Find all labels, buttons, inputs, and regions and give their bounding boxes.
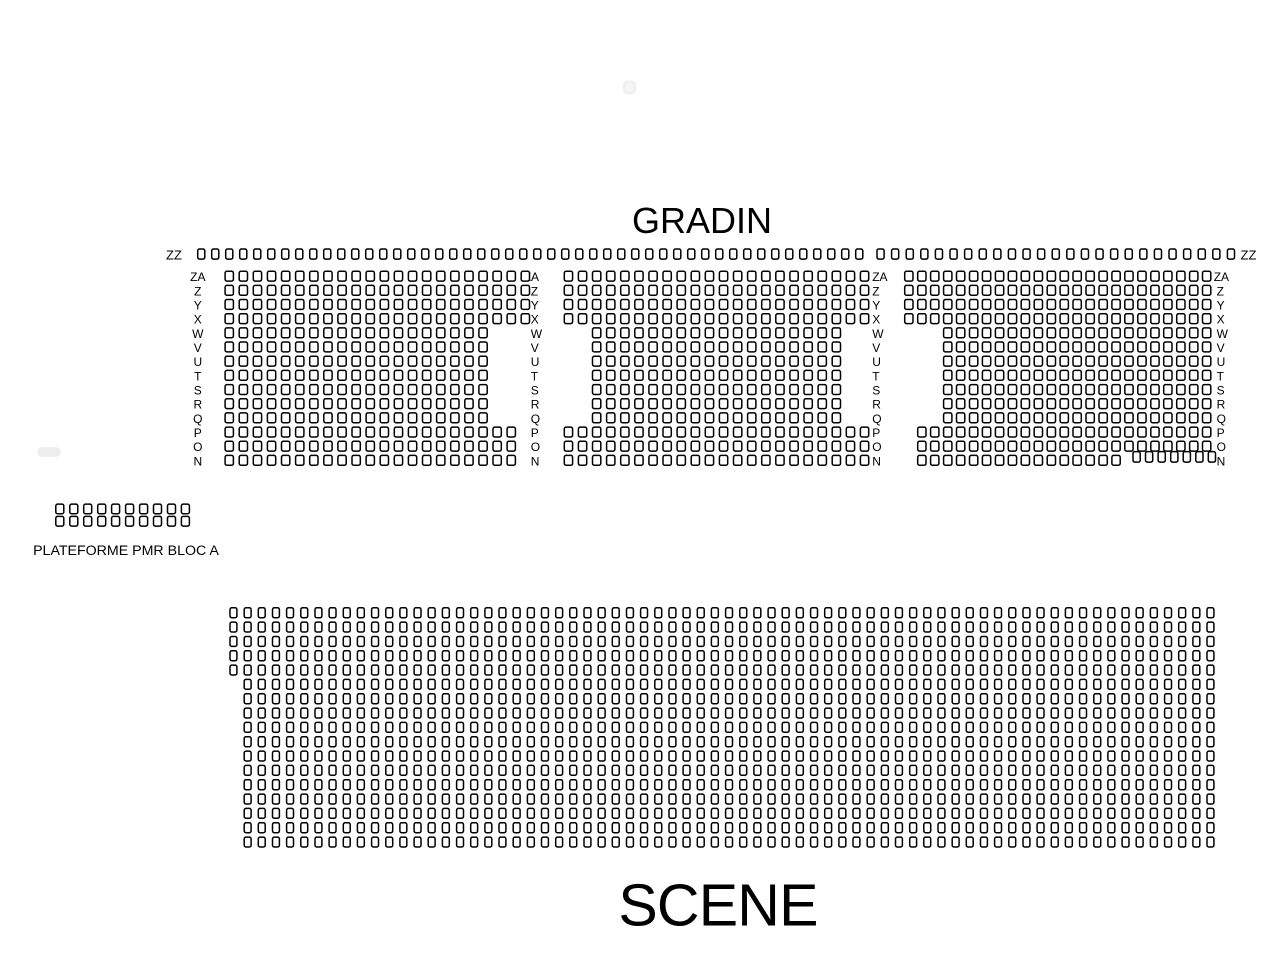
svg-text:Z: Z xyxy=(1217,284,1224,298)
svg-text:W: W xyxy=(1217,327,1229,341)
svg-text:P: P xyxy=(872,426,880,440)
svg-text:N: N xyxy=(872,454,881,468)
svg-text:W: W xyxy=(872,327,884,341)
svg-text:Z: Z xyxy=(872,284,879,298)
svg-text:R: R xyxy=(193,398,202,412)
svg-text:X: X xyxy=(194,313,202,327)
svg-text:P: P xyxy=(531,426,539,440)
svg-text:O: O xyxy=(193,440,202,454)
svg-text:ZZ: ZZ xyxy=(166,248,182,263)
svg-text:Y: Y xyxy=(1217,299,1225,313)
svg-text:T: T xyxy=(194,369,202,383)
svg-text:Q: Q xyxy=(872,412,881,426)
svg-text:R: R xyxy=(872,398,881,412)
svg-text:U: U xyxy=(872,355,881,369)
svg-text:V: V xyxy=(872,341,880,355)
svg-text:P: P xyxy=(194,426,202,440)
svg-text:Q: Q xyxy=(193,412,202,426)
svg-text:O: O xyxy=(531,440,540,454)
svg-text:N: N xyxy=(531,454,540,468)
svg-text:W: W xyxy=(192,327,204,341)
svg-text:SCENE: SCENE xyxy=(618,873,817,939)
svg-text:GRADIN: GRADIN xyxy=(632,200,772,241)
svg-text:PLATEFORME PMR BLOC A: PLATEFORME PMR BLOC A xyxy=(33,543,219,559)
svg-text:X: X xyxy=(1217,313,1225,327)
svg-text:V: V xyxy=(194,341,202,355)
svg-text:P: P xyxy=(1217,426,1225,440)
svg-text:N: N xyxy=(1217,454,1226,468)
svg-text:ZA: ZA xyxy=(1214,270,1229,284)
svg-text:T: T xyxy=(872,369,880,383)
svg-text:U: U xyxy=(531,355,540,369)
svg-text:ZA: ZA xyxy=(190,270,205,284)
svg-text:N: N xyxy=(193,454,202,468)
svg-text:O: O xyxy=(872,440,881,454)
svg-text:T: T xyxy=(531,369,539,383)
svg-text:V: V xyxy=(531,341,539,355)
svg-text:Z: Z xyxy=(194,284,201,298)
svg-text:X: X xyxy=(872,313,880,327)
svg-text:ZA: ZA xyxy=(872,270,887,284)
svg-text:W: W xyxy=(531,327,543,341)
svg-text:S: S xyxy=(872,384,880,398)
svg-text:Q: Q xyxy=(531,412,540,426)
svg-text:S: S xyxy=(194,384,202,398)
svg-text:S: S xyxy=(531,384,539,398)
svg-text:Z: Z xyxy=(531,284,538,298)
svg-text:Y: Y xyxy=(194,299,202,313)
svg-text:R: R xyxy=(531,398,540,412)
svg-text:Q: Q xyxy=(1217,412,1226,426)
svg-text:Y: Y xyxy=(872,299,880,313)
svg-text:R: R xyxy=(1217,398,1226,412)
svg-text:Y: Y xyxy=(531,299,539,313)
svg-text:O: O xyxy=(1217,440,1226,454)
svg-text:X: X xyxy=(531,313,539,327)
svg-text:U: U xyxy=(1217,355,1226,369)
svg-text:S: S xyxy=(1217,384,1225,398)
svg-text:T: T xyxy=(1217,369,1225,383)
svg-text:U: U xyxy=(193,355,202,369)
svg-text:ZZ: ZZ xyxy=(1241,248,1257,263)
svg-text:V: V xyxy=(1217,341,1225,355)
